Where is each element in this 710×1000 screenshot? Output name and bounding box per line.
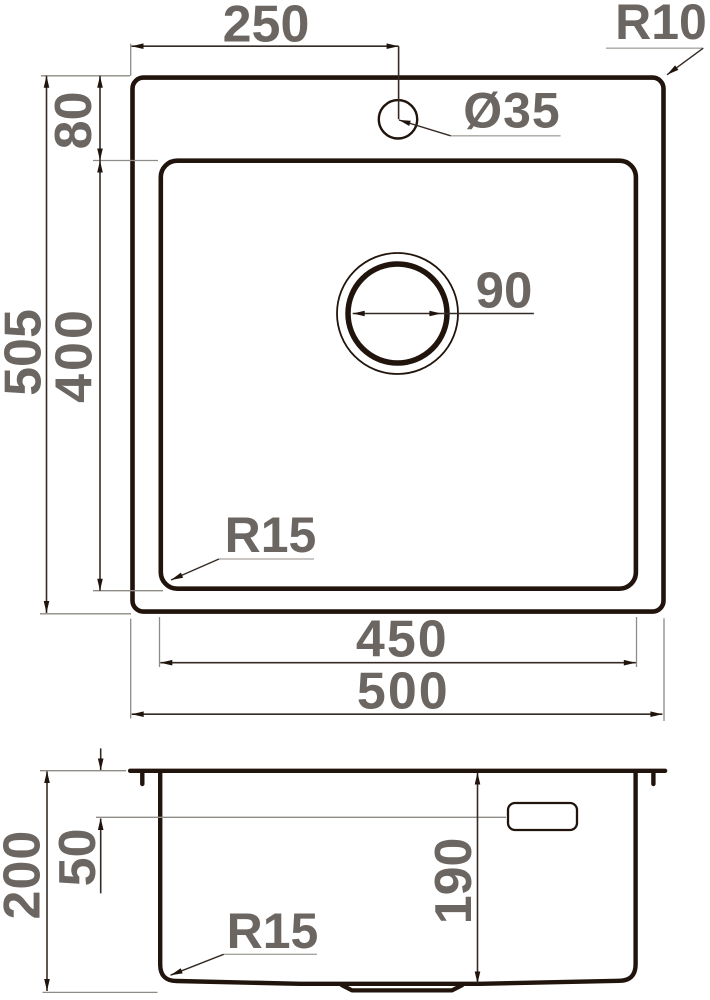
svg-text:400: 400 [46, 307, 104, 403]
svg-text:505: 505 [0, 309, 52, 396]
svg-text:R15: R15 [227, 903, 319, 959]
svg-text:250: 250 [223, 0, 310, 53]
svg-text:50: 50 [49, 828, 107, 886]
svg-text:90: 90 [476, 262, 533, 319]
svg-text:R15: R15 [225, 507, 317, 563]
svg-text:R10: R10 [615, 0, 707, 50]
svg-text:Ø35: Ø35 [463, 82, 561, 138]
svg-text:190: 190 [425, 838, 483, 925]
svg-text:450: 450 [356, 610, 449, 668]
svg-text:200: 200 [0, 830, 52, 920]
svg-text:80: 80 [45, 91, 103, 149]
svg-text:500: 500 [357, 663, 450, 721]
